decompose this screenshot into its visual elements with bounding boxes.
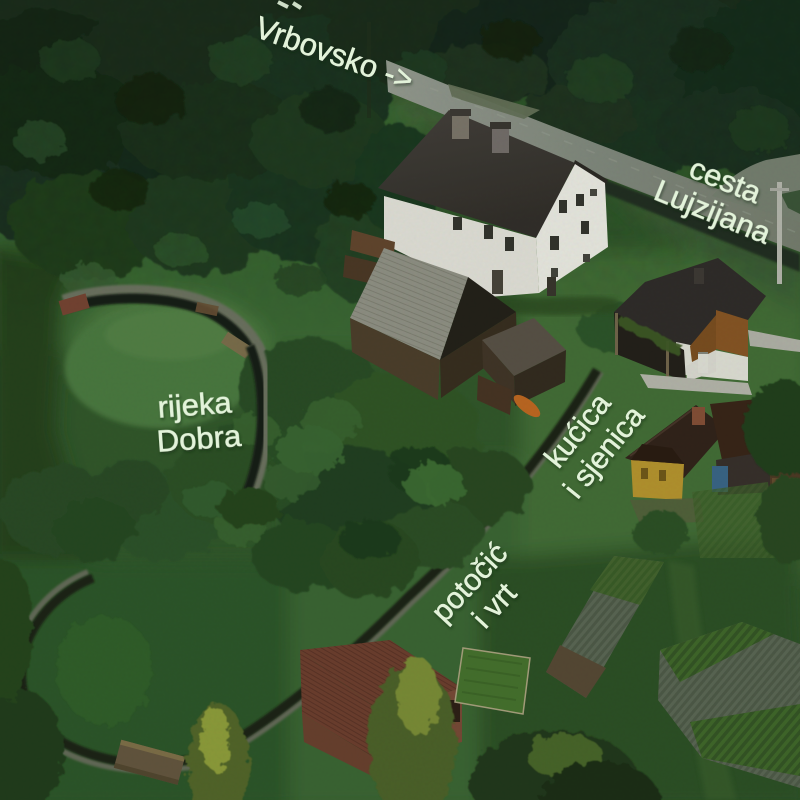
svg-text:Dobra: Dobra [156,418,243,459]
